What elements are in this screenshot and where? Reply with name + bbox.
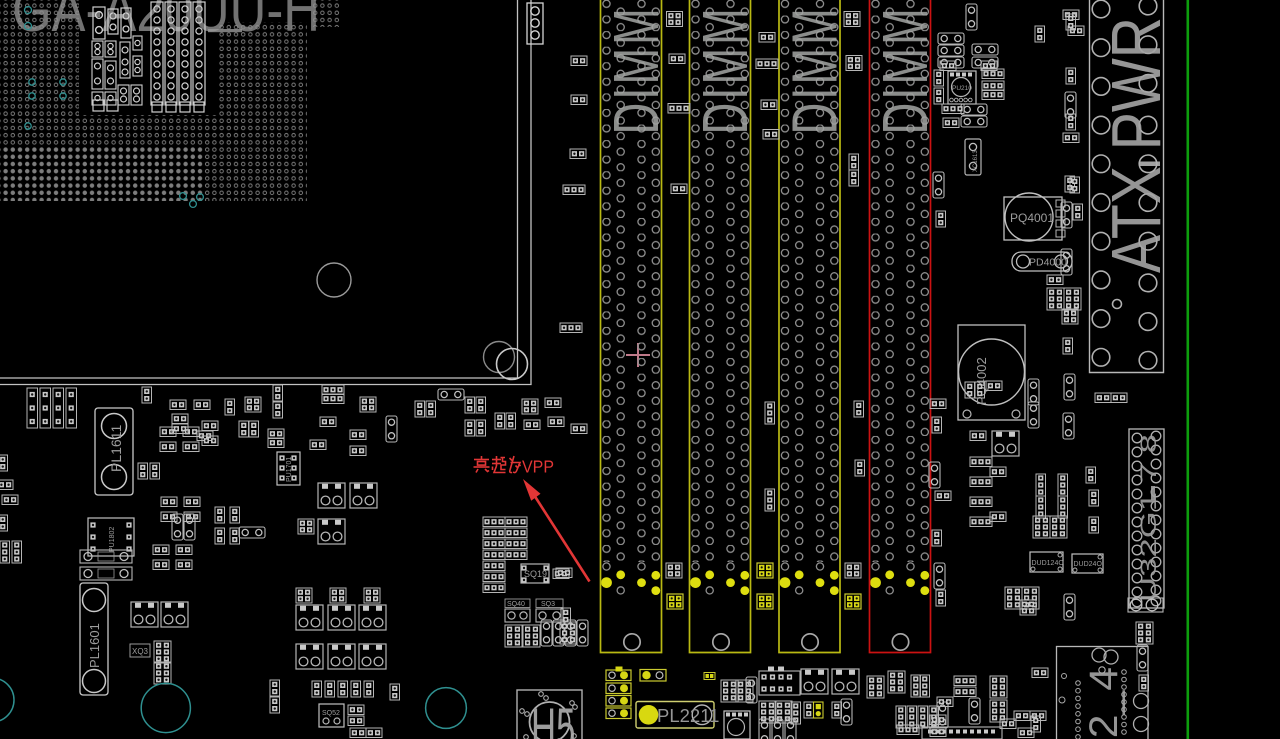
svg-text:PQ4001: PQ4001 bbox=[1010, 211, 1054, 225]
svg-text:ATX PWR: ATX PWR bbox=[1097, 17, 1175, 273]
svg-text:U32G1 7 8: U32G1 7 8 bbox=[1136, 434, 1161, 602]
svg-text:VPP: VPP bbox=[522, 457, 554, 477]
svg-text:GA-A20UU-H: GA-A20UU-H bbox=[12, 0, 320, 45]
svg-text:PL1601: PL1601 bbox=[87, 623, 102, 668]
svg-text:PU1701: PU1701 bbox=[286, 457, 293, 482]
svg-text:PL1611: PL1611 bbox=[108, 425, 124, 472]
svg-text:DUD24O: DUD24O bbox=[1074, 561, 1103, 568]
svg-text:32_4: 32_4 bbox=[1082, 667, 1126, 739]
svg-text:PL2211: PL2211 bbox=[657, 705, 719, 726]
svg-text:XQ3: XQ3 bbox=[132, 647, 149, 656]
svg-text:H5: H5 bbox=[531, 697, 575, 739]
svg-text:SQ52: SQ52 bbox=[322, 710, 340, 717]
svg-text:PU210: PU210 bbox=[952, 85, 972, 92]
svg-text:PU1802: PU1802 bbox=[109, 527, 116, 552]
svg-text:XC1613: XC1613 bbox=[973, 150, 979, 172]
svg-text:PD4000: PD4000 bbox=[1029, 257, 1067, 269]
svg-text:SQ3: SQ3 bbox=[541, 601, 555, 608]
svg-text:SQ40: SQ40 bbox=[507, 601, 525, 608]
svg-text:DUD124O: DUD124O bbox=[1032, 560, 1065, 567]
